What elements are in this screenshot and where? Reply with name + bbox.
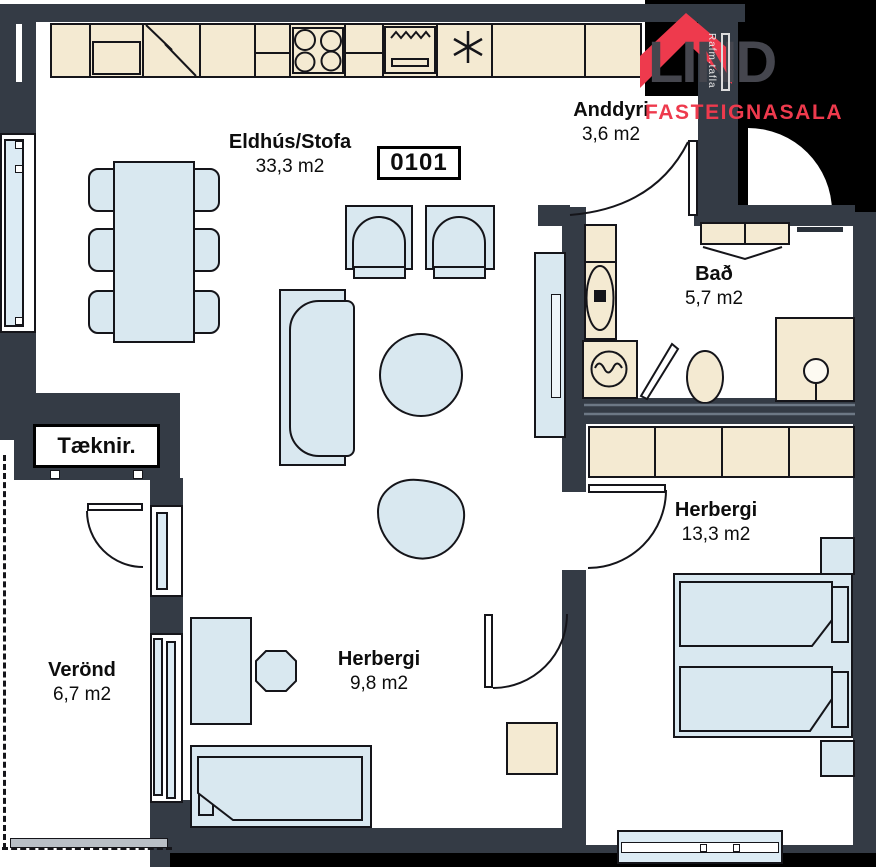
- room-area: 5,7 m2: [685, 287, 743, 311]
- room-name: Verönd: [48, 658, 116, 683]
- room-name: Eldhús/Stofa: [229, 130, 351, 155]
- room-area: 33,3 m2: [229, 155, 351, 179]
- electrical-panel-label: Rafm.tafla: [703, 33, 717, 153]
- electrical-panel-symbol: [721, 33, 730, 91]
- room-name: Anddyri: [573, 98, 649, 123]
- unit-number: 0101: [390, 149, 447, 176]
- room-area: 9,8 m2: [338, 672, 420, 696]
- brand-logo-subtitle: FASTEIGNASALA: [645, 101, 843, 125]
- room-label-entrance: Anddyri 3,6 m2: [573, 98, 649, 147]
- plan-linework: [0, 0, 876, 867]
- room-name: Herbergi: [675, 498, 757, 523]
- room-name: Bað: [685, 262, 743, 287]
- room-label-kitchen-living: Eldhús/Stofa 33,3 m2: [229, 130, 351, 179]
- room-area: 13,3 m2: [675, 523, 757, 547]
- room-name: Herbergi: [338, 647, 420, 672]
- room-label-bathroom: Bað 5,7 m2: [685, 262, 743, 311]
- room-area: 6,7 m2: [48, 683, 116, 707]
- floor-plan: Tæknir.: [0, 0, 876, 867]
- unit-number-box: 0101: [377, 146, 461, 180]
- room-label-bedroom-large: Herbergi 13,3 m2: [675, 498, 757, 547]
- room-area: 3,6 m2: [573, 123, 649, 147]
- room-label-bedroom-small: Herbergi 9,8 m2: [338, 647, 420, 696]
- brand-logo-text: LIND: [648, 34, 868, 92]
- room-label-veranda: Verönd 6,7 m2: [48, 658, 116, 707]
